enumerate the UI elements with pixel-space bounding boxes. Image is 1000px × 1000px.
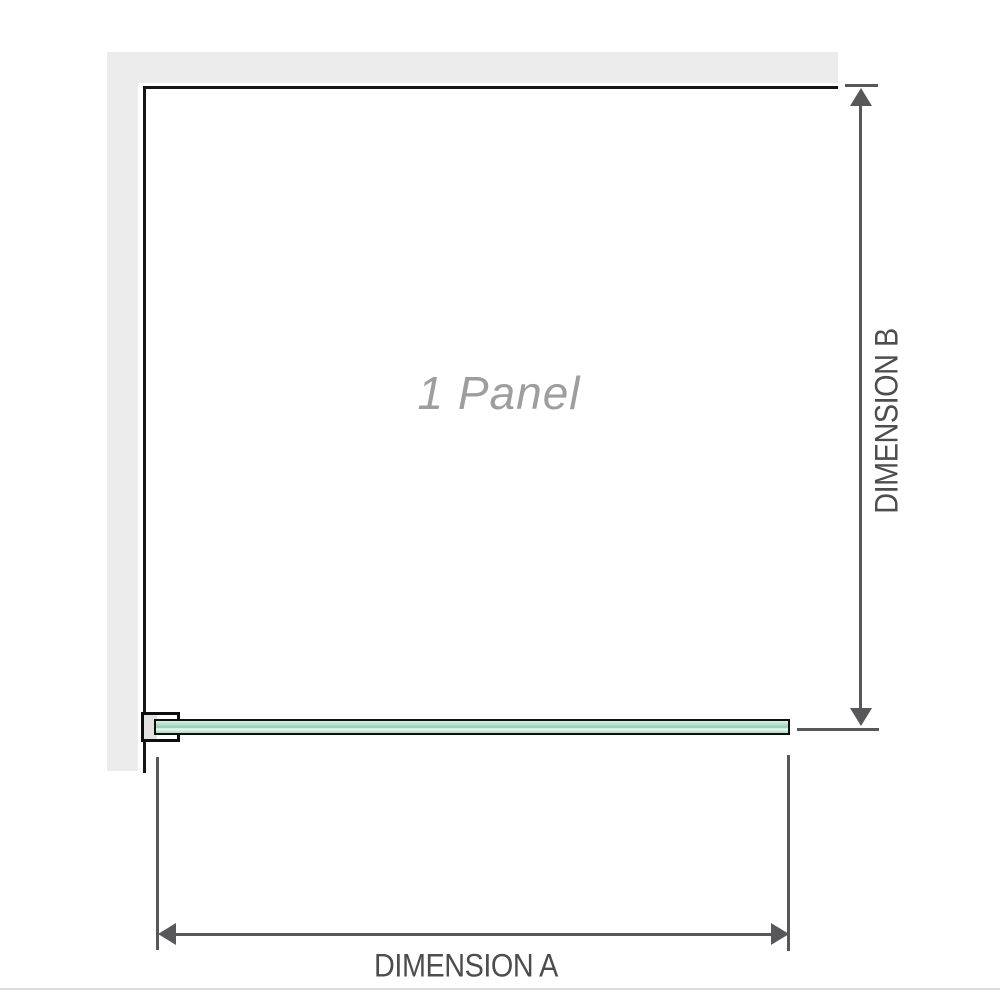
arrow-left-icon [158, 923, 176, 945]
arrow-right-icon [771, 923, 789, 945]
dim-b-top-tick [845, 84, 878, 87]
shower-panel-dimension-diagram: 1 Panel DIMENSION B DIMENSION A [0, 0, 1000, 1000]
dimension-a-label: DIMENSION A [374, 948, 558, 985]
dim-b-line [859, 92, 862, 716]
panel-outline-left-line [143, 86, 146, 773]
glass-panel-bar [154, 719, 790, 735]
dim-a-left-extension-line [156, 757, 159, 950]
panel-count-label: 1 Panel [417, 366, 580, 420]
dim-a-line [164, 933, 783, 936]
bottom-divider-line [0, 988, 1000, 990]
dimension-b-label: DIMENSION B [869, 328, 906, 513]
arrow-up-icon [850, 88, 872, 106]
dim-a-right-extension-line [787, 755, 790, 951]
wall-top-segment [107, 52, 838, 83]
panel-outline-top-line [143, 86, 838, 89]
dim-b-bottom-tick [797, 728, 879, 731]
arrow-down-icon [850, 708, 872, 726]
wall-left-segment [107, 52, 138, 771]
